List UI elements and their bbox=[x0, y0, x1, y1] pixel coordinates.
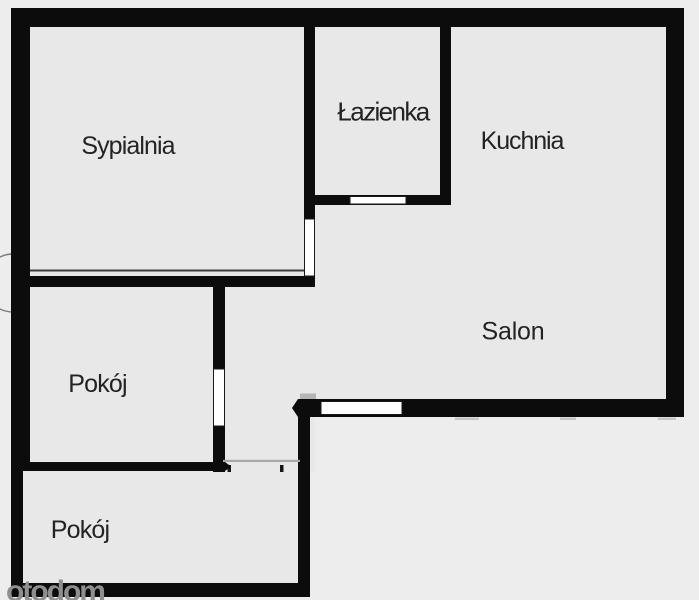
svg-text:Pokój: Pokój bbox=[51, 516, 110, 544]
svg-text:Łazienka: Łazienka bbox=[337, 97, 430, 127]
svg-text:Salon: Salon bbox=[482, 318, 545, 346]
svg-text:otodom: otodom bbox=[6, 575, 104, 600]
svg-text:Kuchnia: Kuchnia bbox=[481, 127, 565, 155]
svg-text:Pokój: Pokój bbox=[68, 370, 127, 398]
svg-text:Sypialnia: Sypialnia bbox=[81, 132, 175, 160]
